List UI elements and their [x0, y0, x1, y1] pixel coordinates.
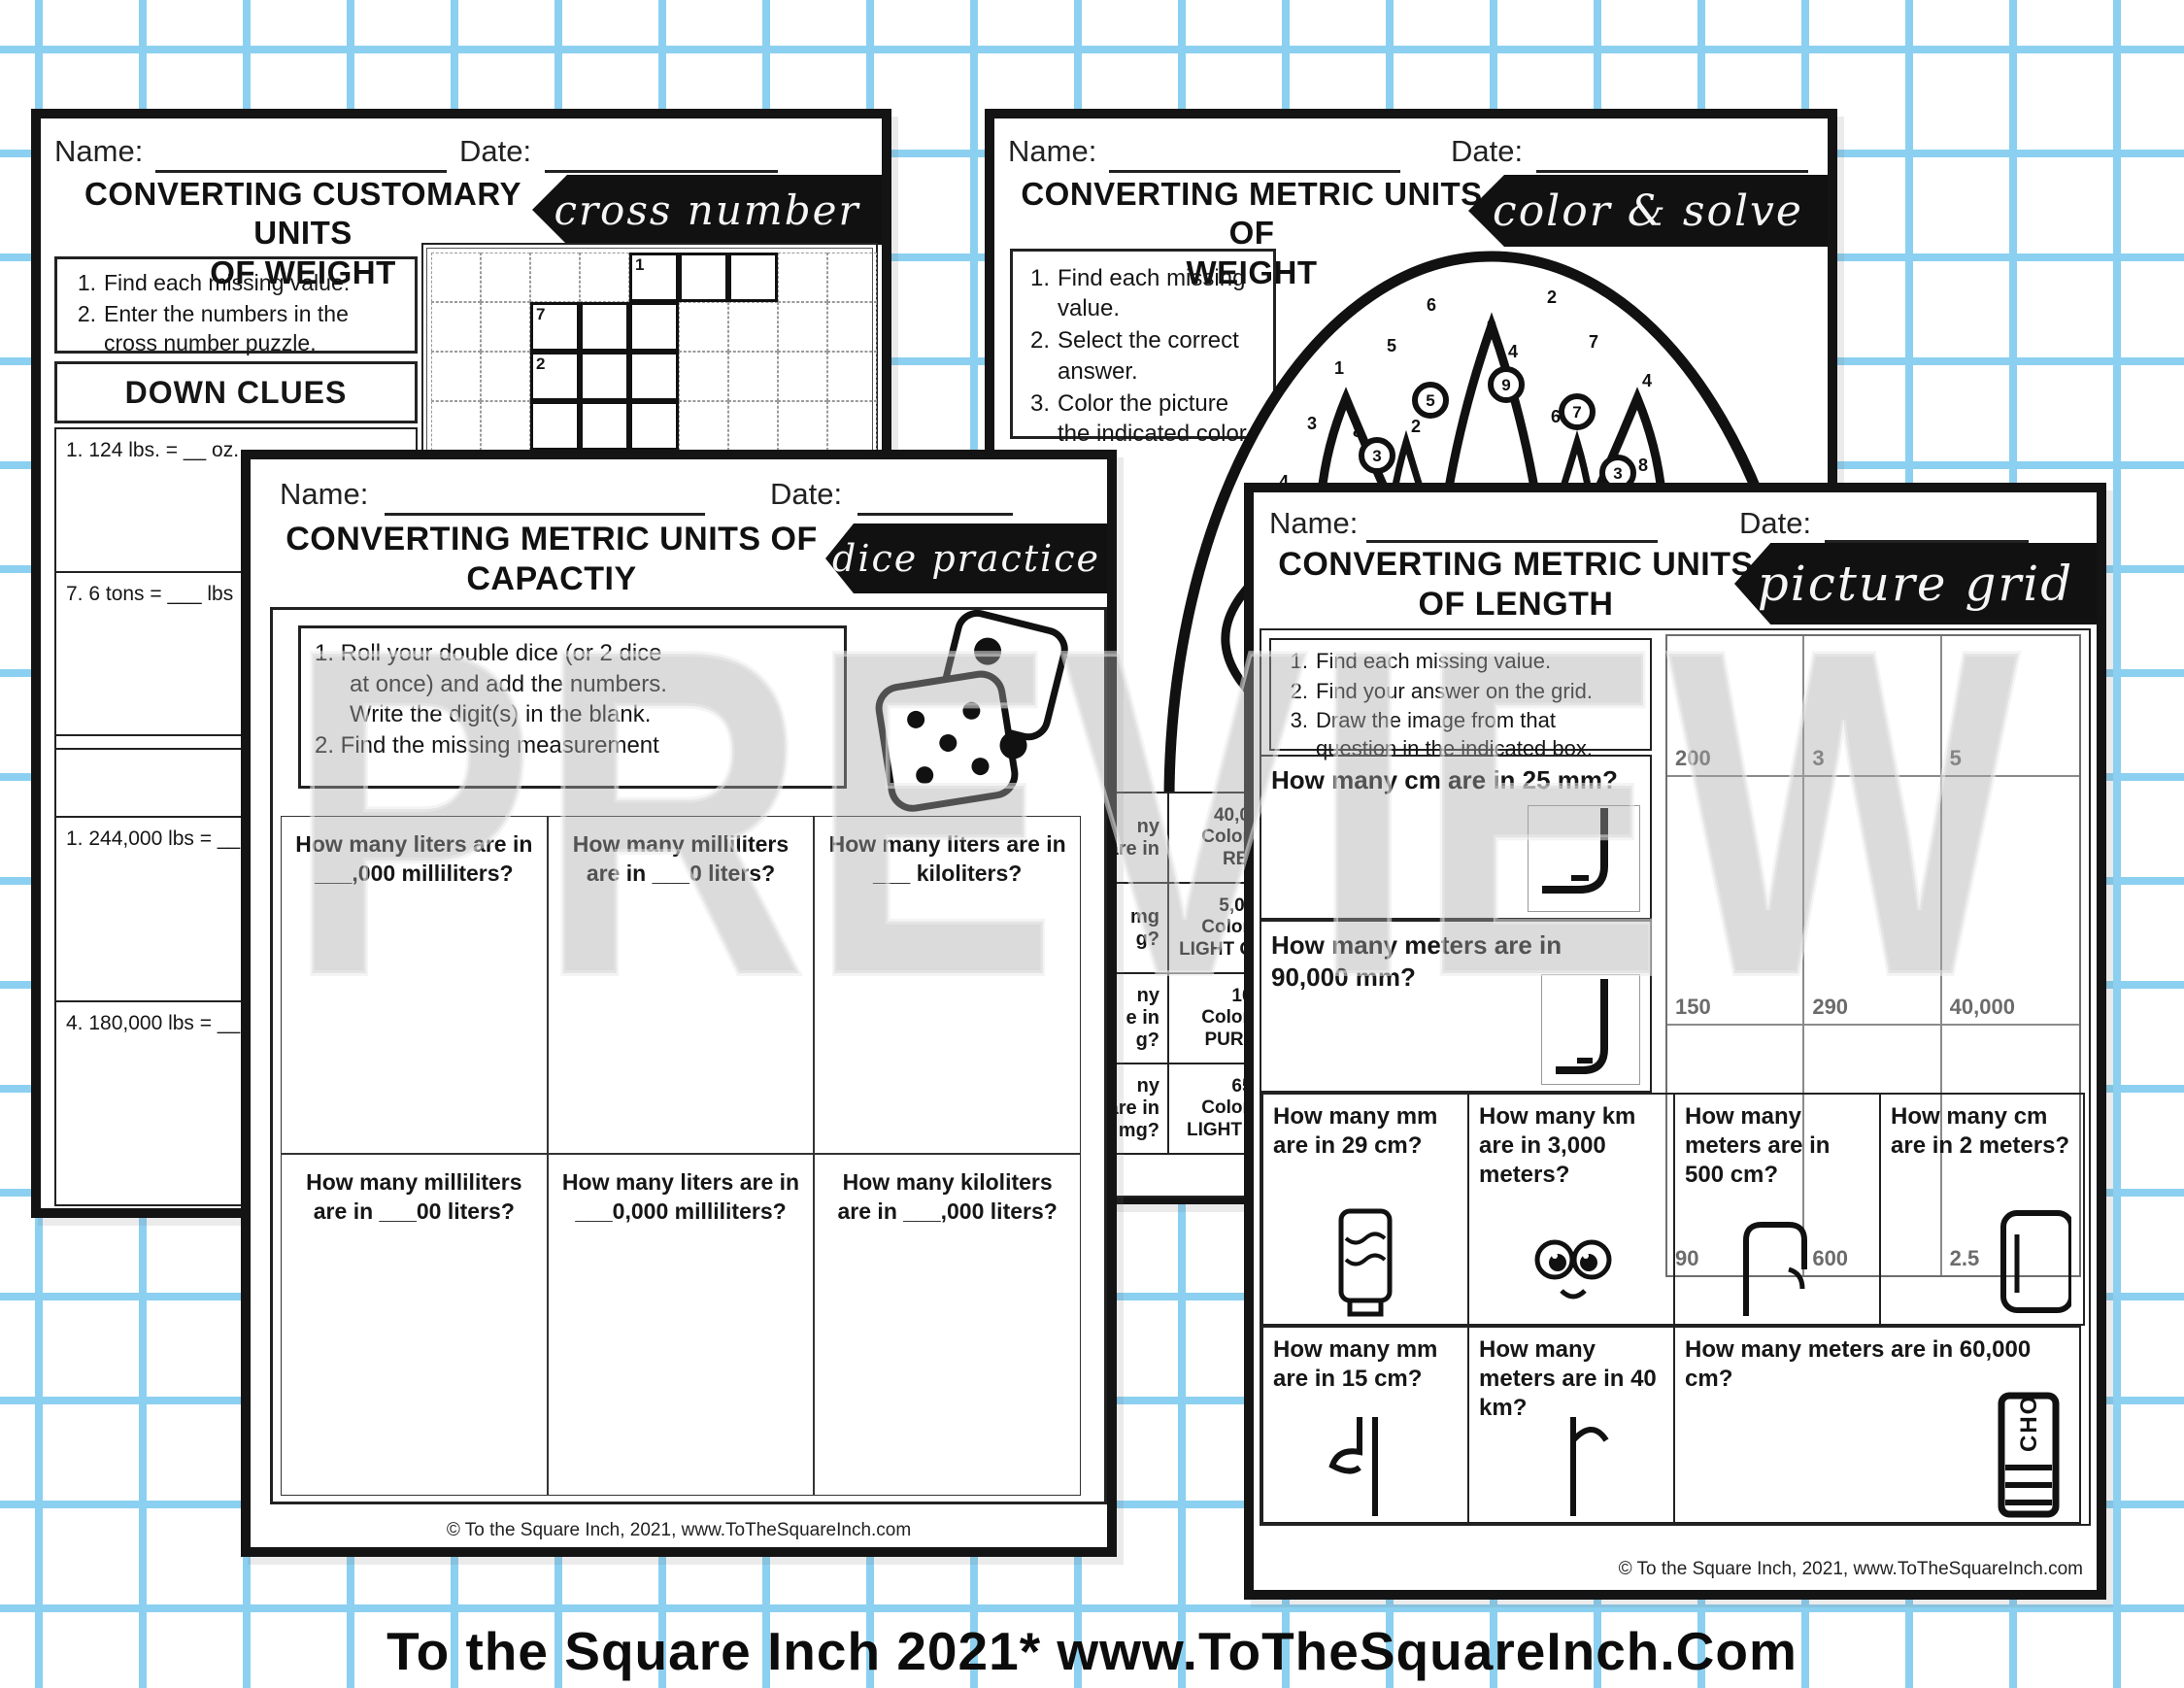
date-underline [545, 169, 778, 173]
mandala-number: 3 [1307, 414, 1317, 433]
name-underline [1366, 539, 1658, 543]
grid-number: 150 [1675, 995, 1711, 1020]
puzzle-grid-cell [778, 253, 827, 302]
chocolate-bar-doodle-icon: CHO [1988, 1392, 2069, 1518]
svg-text:CHO: CHO [2016, 1395, 2042, 1452]
puzzle-grid-cell [481, 401, 530, 451]
grid-number: 200 [1675, 746, 1711, 771]
name-underline [155, 169, 447, 173]
drawing-box [1957, 1205, 2071, 1320]
puzzle-grid-cell [827, 253, 877, 302]
instruction-number: 1. [67, 269, 96, 298]
puzzle-grid-cell [481, 253, 530, 302]
instruction-item: 1.Find each missing value. [67, 269, 405, 298]
puzzle-grid-cell [431, 302, 481, 352]
page-title: CONVERTING METRIC UNITS OFCAPACTIY [270, 520, 833, 600]
instruction-line: 1. Roll your double dice (or 2 dice [315, 638, 830, 669]
question-cell: How many km are in 3,000 meters? [1467, 1093, 1675, 1326]
puzzle-grid-cell [481, 352, 530, 401]
question-fragment-line: g? [1136, 1030, 1159, 1052]
puzzle-grid-cell [679, 401, 728, 451]
copyright: © To the Square Inch, 2021, www.ToTheSqu… [251, 1520, 1107, 1541]
toothpaste-doodle-icon [1317, 1205, 1414, 1320]
instructions-box: 1.Find each missing value.2.Enter the nu… [54, 256, 418, 354]
question-grid: How many liters are in ___,000 millilite… [281, 816, 1081, 1496]
question-cell: How many milliliters are in ___0 liters? [548, 816, 815, 1154]
mandala-number: 6 [1427, 295, 1436, 315]
down-clues-header: DOWN CLUES [54, 361, 418, 423]
puzzle-grid-cell [431, 401, 481, 451]
drawing-box [1523, 1413, 1620, 1520]
content-box: 1.Find each missing value.2.Find your an… [1260, 628, 2091, 1526]
date-label: Date: [459, 134, 531, 169]
instruction-line: Write the digit(s) in the blank. [315, 699, 830, 730]
date-label: Date: [770, 477, 842, 512]
question-cell: How many liters are in ___,000 millilite… [281, 816, 548, 1154]
instruction-text: Find each missing value. [1316, 648, 1551, 676]
question-cell-wide: How many meters are in 60,000 cm? CHO [1673, 1326, 2081, 1524]
puzzle-grid-cell [431, 352, 481, 401]
mandala-number: 4 [1642, 371, 1652, 390]
question-cell: How many meters are in 500 cm? [1673, 1093, 1881, 1326]
puzzle-grid-cell [728, 401, 778, 451]
question-cell: How many liters are in ___ kiloliters? [814, 816, 1081, 1154]
instruction-number: 2. [1021, 325, 1050, 386]
name-label: Name: [1269, 506, 1358, 541]
puzzle-grid-cell [778, 302, 827, 352]
question-row: How many mm are in 29 cm? How many km ar… [1261, 1093, 2085, 1326]
puzzle-grid-cell [530, 253, 580, 302]
question-cell: How many meters are in 90,000 mm? [1260, 920, 1652, 1093]
question-fragment-line: ny [1137, 816, 1159, 838]
picture-grid-cell: 150 [1667, 777, 1804, 1027]
puzzle-answer-cell [679, 253, 728, 302]
mandala-number: 2 [1411, 417, 1421, 436]
picture-grid-cell: 40,000 [1942, 777, 2079, 1027]
puzzle-answer-cell: 2 [530, 352, 580, 401]
stick-doodle-icon [1317, 1413, 1414, 1520]
date-label: Date: [1739, 506, 1811, 541]
instruction-number: 1. [1021, 263, 1050, 323]
banner-color-and-solve: color & solve [1468, 175, 1828, 247]
content-box: 1. Roll your double dice (or 2 diceat on… [270, 607, 1107, 1504]
drawing-box [1317, 1413, 1414, 1520]
puzzle-cell-number: 7 [536, 305, 545, 324]
instruction-number: 2. [1279, 678, 1308, 706]
instruction-number: 1. [1279, 648, 1308, 676]
puzzle-cell-number: 1 [635, 255, 644, 275]
puzzle-answer-cell [629, 401, 679, 451]
question-cell: How many kiloliters are in ___,000 liter… [814, 1154, 1081, 1496]
puzzle-grid-cell [679, 352, 728, 401]
puzzle-grid-cell [580, 253, 629, 302]
date-label: Date: [1451, 134, 1523, 169]
grid-number: 5 [1950, 746, 1962, 771]
banner-cross-number: cross number [532, 175, 882, 245]
question-row: How many mm are in 15 cm? How many meter… [1261, 1326, 2085, 1524]
instruction-number: 2. [67, 300, 96, 358]
question-cell: How many mm are in 29 cm? [1261, 1093, 1469, 1326]
puzzle-answer-cell: 7 [530, 302, 580, 352]
partial-drawing-icon [1542, 975, 1639, 1084]
puzzle-answer-cell [580, 401, 629, 451]
mandala-number: 9 [1487, 317, 1496, 336]
banner-picture-grid: picture grid [1734, 543, 2097, 625]
partial-drawing-icon [1529, 806, 1639, 911]
mandala-number: 1 [1334, 358, 1344, 378]
mandala-number: 7 [1589, 332, 1598, 352]
puzzle-answer-cell [629, 352, 679, 401]
puzzle-grid-cell [679, 302, 728, 352]
puzzle-cell-number: 2 [536, 354, 545, 374]
puzzle-grid-cell [481, 302, 530, 352]
dice-icon [836, 610, 1091, 812]
name-label: Name: [54, 134, 143, 169]
instruction-text: Enter the numbers in the cross number pu… [104, 300, 405, 358]
drawing-box [1317, 1205, 1414, 1320]
footer-caption: To the Square Inch 2021* www.ToTheSquare… [0, 1620, 2184, 1682]
puzzle-grid-cell [778, 401, 827, 451]
drawing-box [1528, 805, 1640, 912]
mandala-number: 5 [1426, 391, 1434, 410]
question-fragment-line: e in [1126, 1007, 1159, 1030]
grid-number: 3 [1812, 746, 1824, 771]
name-underline [1109, 169, 1400, 173]
instruction-item: 2.Enter the numbers in the cross number … [67, 300, 405, 358]
question-cell: How many milliliters are in ___00 liters… [281, 1154, 548, 1496]
question-fragment-line: mg? [1119, 1120, 1159, 1142]
mandala-number: 3 [1372, 447, 1381, 465]
picture-grid-cell: 3 [1804, 636, 1941, 777]
page-title: CONVERTING METRIC UNITSOF LENGTH [1254, 545, 1778, 625]
mandala-number: 4 [1508, 342, 1518, 361]
mandala-number: 7 [1572, 403, 1581, 422]
copyright: © To the Square Inch, 2021, www.ToTheSqu… [1619, 1559, 2083, 1580]
puzzle-answer-cell [728, 253, 778, 302]
puzzle-grid-cell [827, 401, 877, 451]
date-underline [1536, 169, 1808, 173]
instructions-box: 1. Roll your double dice (or 2 diceat on… [298, 625, 847, 789]
drawing-box [1729, 1211, 1826, 1320]
puzzle-grid: 172 [431, 253, 877, 451]
instruction-number: 3. [1021, 388, 1050, 449]
instruction-item: 1.Find each missing value. [1279, 648, 1642, 676]
date-underline [857, 512, 1013, 516]
question-fragment-line: ny [1137, 1075, 1159, 1097]
question-fragment-line: g? [1136, 928, 1159, 951]
question-fragment-line: ny [1137, 985, 1159, 1007]
puzzle-grid-cell [827, 352, 877, 401]
puzzle-grid-cell [827, 302, 877, 352]
name-underline [385, 512, 705, 516]
mandala-number: 2 [1547, 287, 1557, 307]
puzzle-answer-cell [580, 352, 629, 401]
question-cell: How many mm are in 15 cm? [1261, 1326, 1469, 1524]
instruction-line: at once) and add the numbers. [315, 669, 830, 700]
instruction-item: 2.Find your answer on the grid. [1279, 678, 1642, 706]
puzzle-grid-cell [728, 352, 778, 401]
drawing-box [1523, 1219, 1624, 1320]
puzzle-grid-cell [728, 302, 778, 352]
banner-dice-practice: dice practice [825, 523, 1107, 593]
mandala-number: 8 [1353, 422, 1362, 441]
drawing-box [1541, 974, 1640, 1085]
worksheet-page-metric-length: Name: Date: CONVERTING METRIC UNITSOF LE… [1244, 483, 2106, 1600]
instructions-box: 1.Find each missing value.2.Find your an… [1269, 638, 1652, 751]
puzzle-answer-cell [580, 302, 629, 352]
cute-face-doodle-icon [1523, 1219, 1624, 1320]
instruction-line: 2. Find the missing measurement [315, 730, 830, 761]
mandala-number: 3 [1613, 464, 1622, 483]
date-underline [1825, 539, 2029, 543]
puzzle-answer-cell: 1 [629, 253, 679, 302]
question-fragment-line: mg [1130, 906, 1159, 928]
cross-number-puzzle: 172 [421, 243, 878, 460]
question-cell: How many cm are in 25 mm? [1260, 755, 1652, 920]
partial-drawing-icon [1957, 1205, 2071, 1320]
partial-drawing-icon [1729, 1211, 1826, 1320]
question-cell: How many meters are in 40 km? [1467, 1326, 1675, 1524]
mandala-number: 5 [1387, 336, 1396, 355]
name-label: Name: [1008, 134, 1096, 169]
puzzle-answer-cell [530, 401, 580, 451]
picture-grid-cell: 200 [1667, 636, 1804, 777]
question-cell: How many cm are in 2 meters? [1879, 1093, 2085, 1326]
grid-number: 290 [1812, 995, 1848, 1020]
worksheet-preview-canvas: Name: Date: CONVERTING CUSTOMARY UNITSOF… [0, 0, 2184, 1688]
drawing-box: CHO [1988, 1392, 2069, 1518]
puzzle-grid-cell [431, 253, 481, 302]
instruction-text: Find each missing value. [104, 269, 350, 298]
picture-grid-cell: 5 [1942, 636, 2079, 777]
worksheet-page-metric-capacity: Name: Date: CONVERTING METRIC UNITS OFCA… [241, 450, 1117, 1557]
picture-grid-cell: 290 [1804, 777, 1941, 1027]
stick-doodle-icon [1523, 1413, 1620, 1520]
puzzle-grid-cell [778, 352, 827, 401]
puzzle-answer-cell [629, 302, 679, 352]
grid-number: 40,000 [1950, 995, 2015, 1020]
instruction-text: Find your answer on the grid. [1316, 678, 1593, 706]
mandala-number: 9 [1501, 376, 1510, 394]
name-label: Name: [280, 477, 368, 512]
question-cell: How many liters are in ___0,000 millilit… [548, 1154, 815, 1496]
mandala-number: 8 [1638, 456, 1648, 475]
